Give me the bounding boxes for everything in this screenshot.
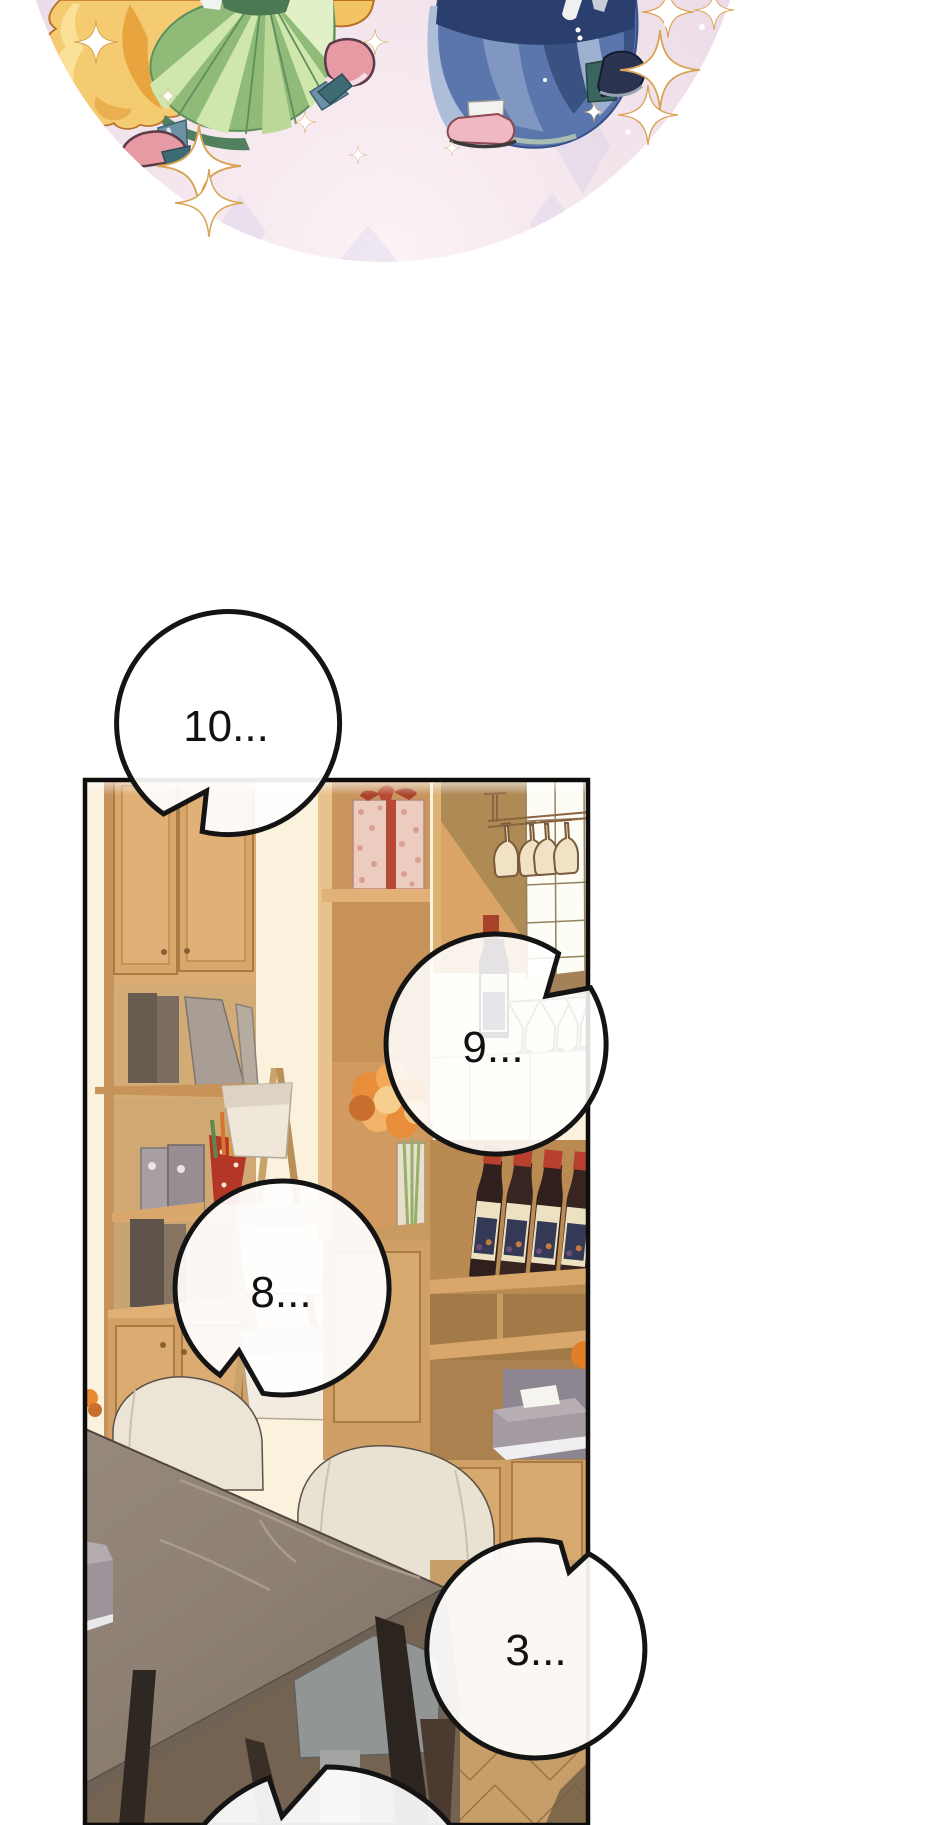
svg-text:3...: 3... xyxy=(505,1626,566,1675)
svg-text:8...: 8... xyxy=(250,1268,311,1317)
svg-text:10...: 10... xyxy=(183,702,269,751)
svg-text:9...: 9... xyxy=(462,1023,523,1072)
